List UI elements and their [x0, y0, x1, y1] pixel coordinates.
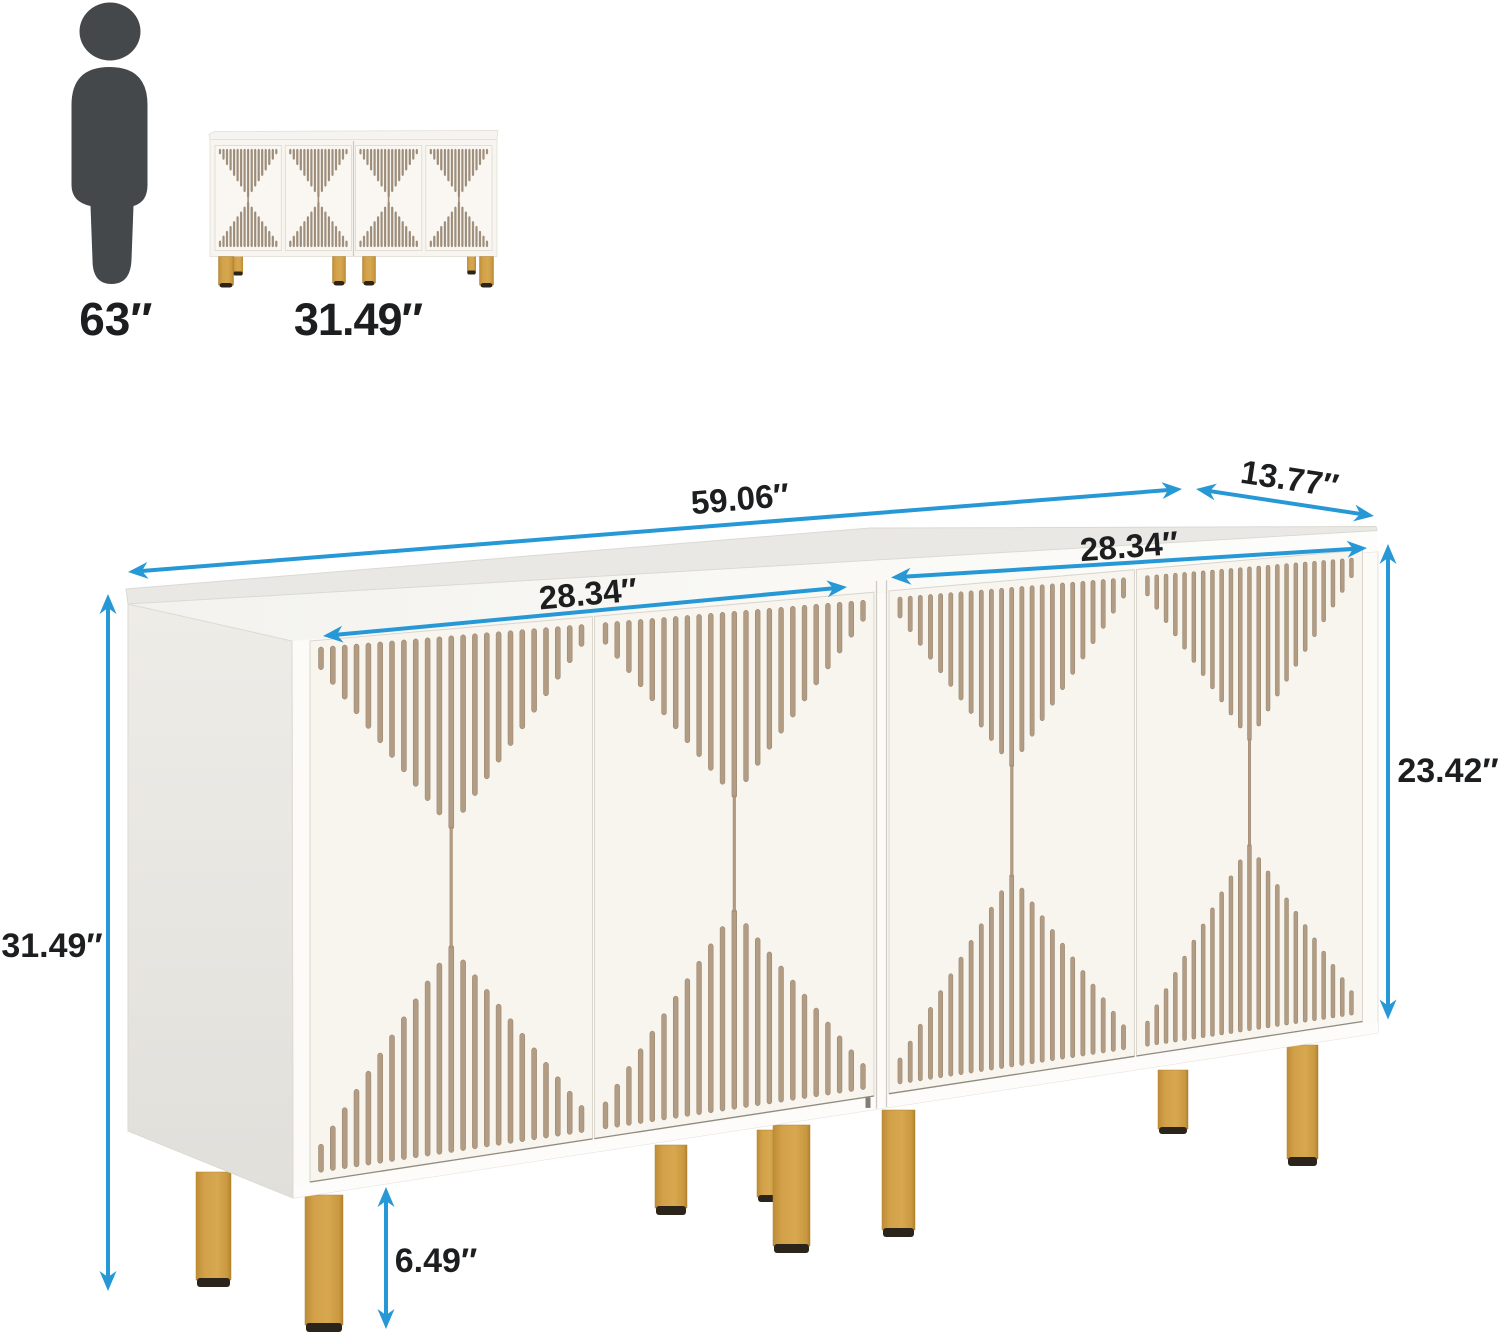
- svg-text:28.34″: 28.34″: [1079, 524, 1180, 568]
- svg-text:23.42″: 23.42″: [1397, 752, 1498, 790]
- svg-text:31.49″: 31.49″: [294, 294, 423, 345]
- svg-text:31.49″: 31.49″: [1, 927, 102, 965]
- svg-text:6.49″: 6.49″: [395, 1242, 477, 1280]
- svg-text:63″: 63″: [79, 293, 152, 345]
